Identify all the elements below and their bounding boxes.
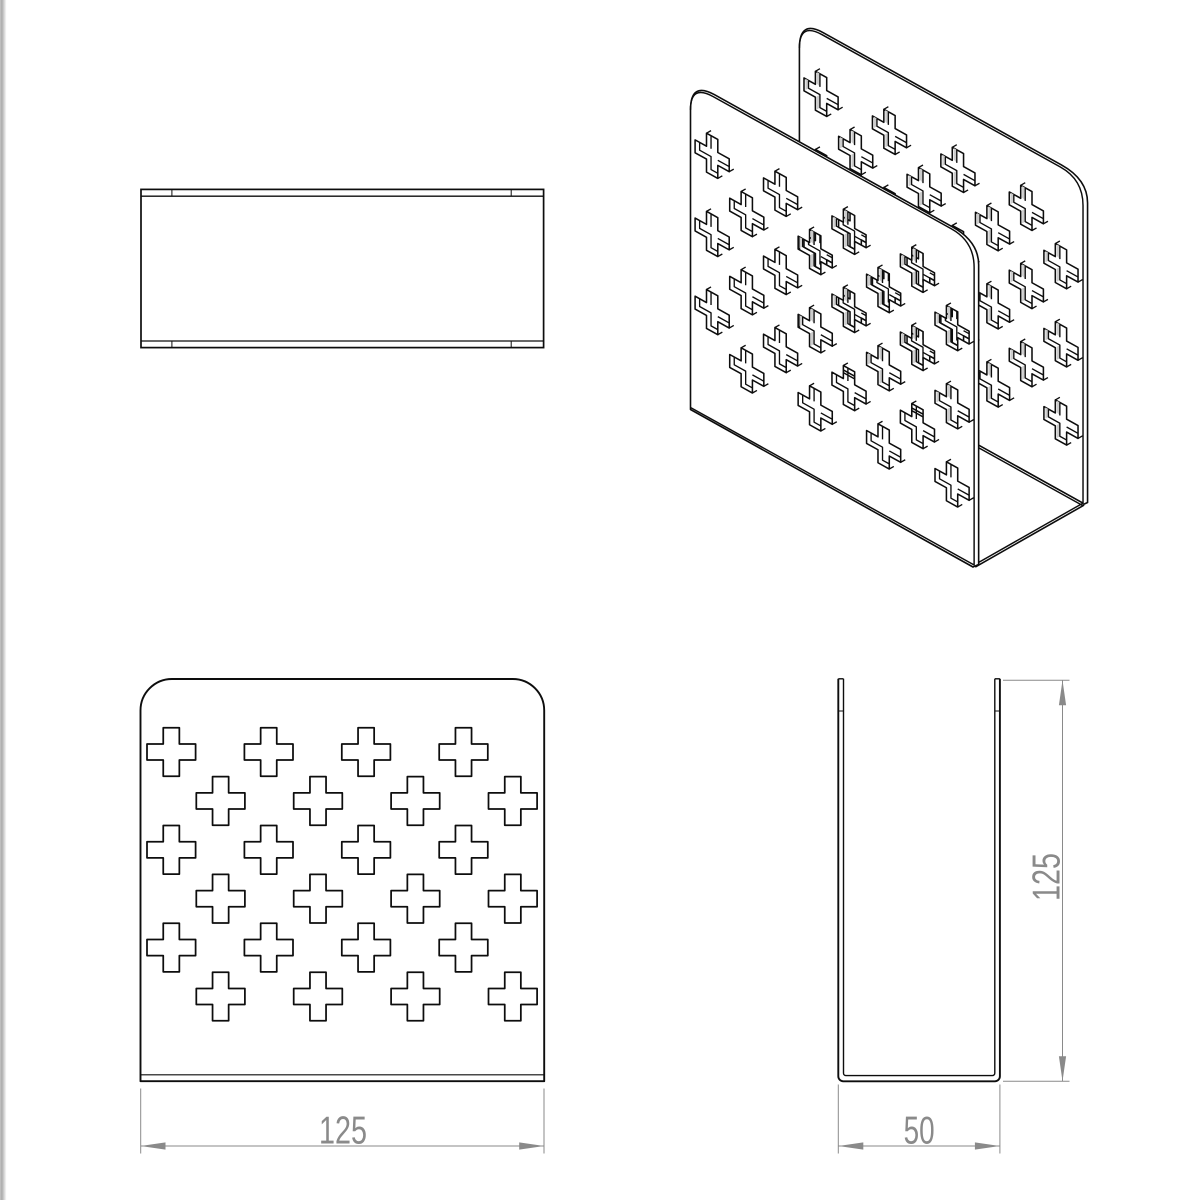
svg-text:125: 125 xyxy=(1026,853,1069,901)
svg-text:50: 50 xyxy=(904,1110,935,1153)
svg-text:125: 125 xyxy=(319,1110,367,1153)
